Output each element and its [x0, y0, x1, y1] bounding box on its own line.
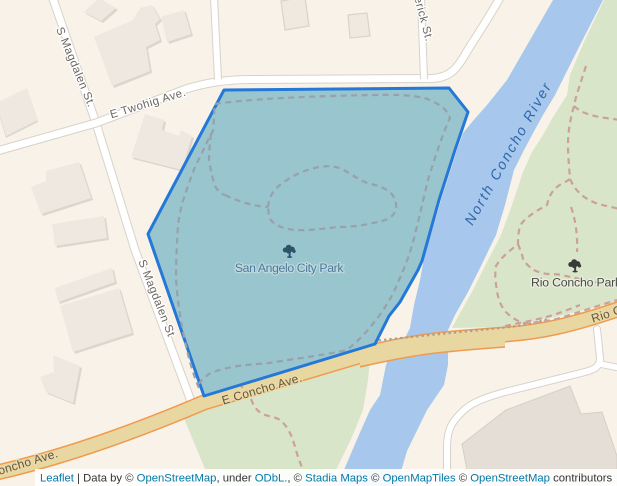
svg-text:San Angelo City Park: San Angelo City Park	[235, 261, 344, 275]
svg-text:Leaflet | Data by © OpenStreet: Leaflet | Data by © OpenStreetMap, under…	[40, 473, 612, 485]
svg-text:Rio Concho Park: Rio Concho Park	[531, 276, 617, 290]
